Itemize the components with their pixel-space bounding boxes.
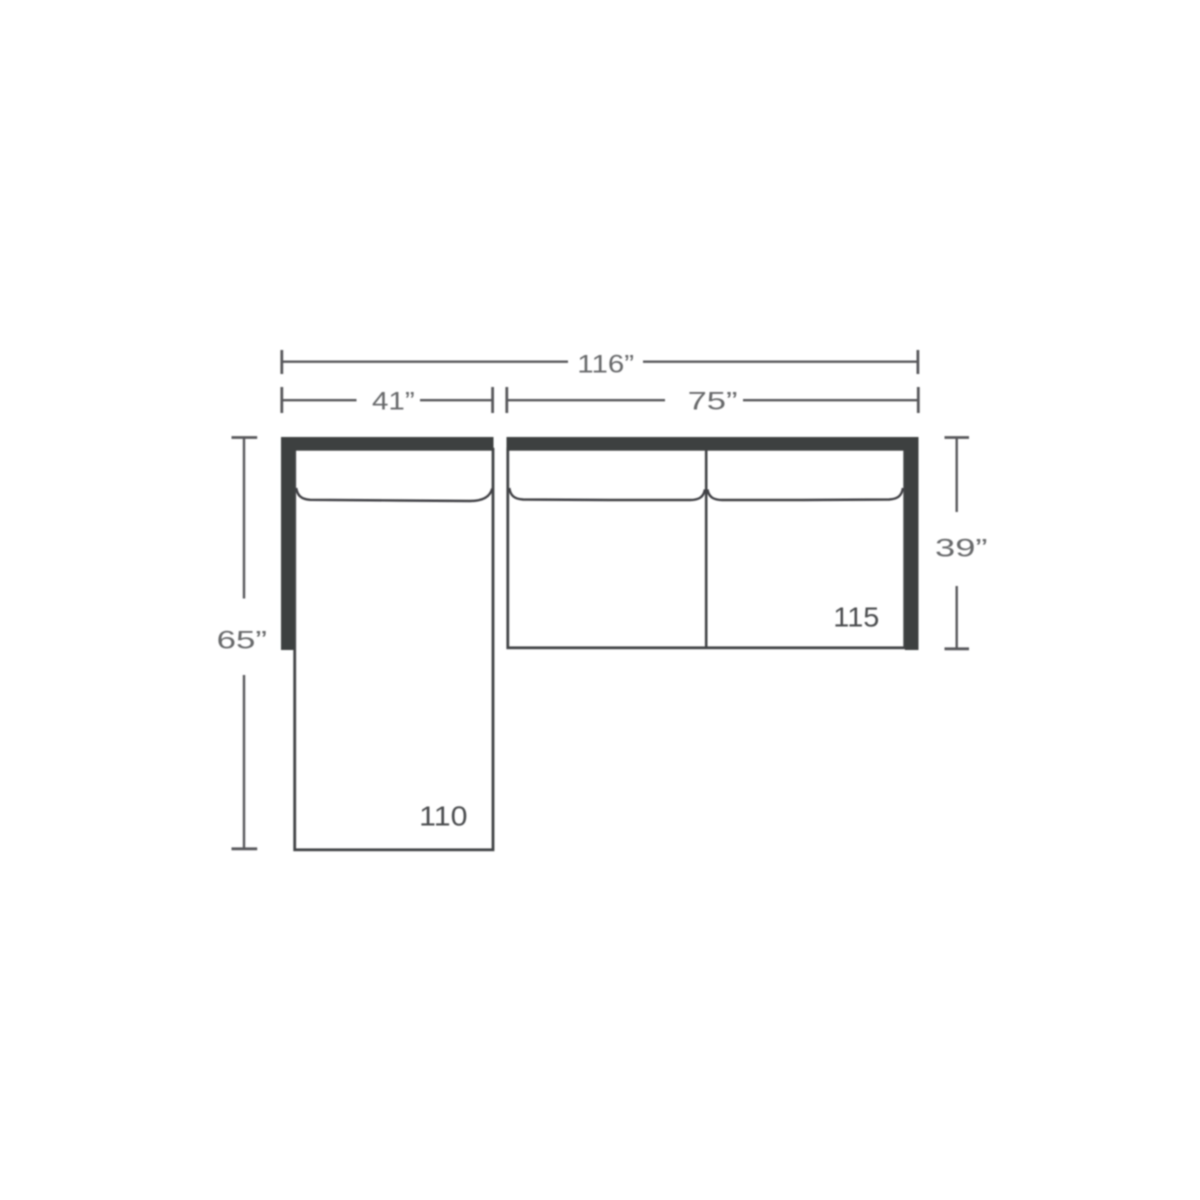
svg-text:115: 115	[833, 601, 879, 632]
svg-text:39”: 39”	[935, 536, 988, 563]
svg-text:110: 110	[419, 800, 467, 831]
svg-text:75”: 75”	[688, 389, 738, 416]
svg-text:116”: 116”	[577, 352, 634, 379]
svg-text:41”: 41”	[372, 389, 415, 416]
svg-text:65”: 65”	[217, 628, 267, 655]
